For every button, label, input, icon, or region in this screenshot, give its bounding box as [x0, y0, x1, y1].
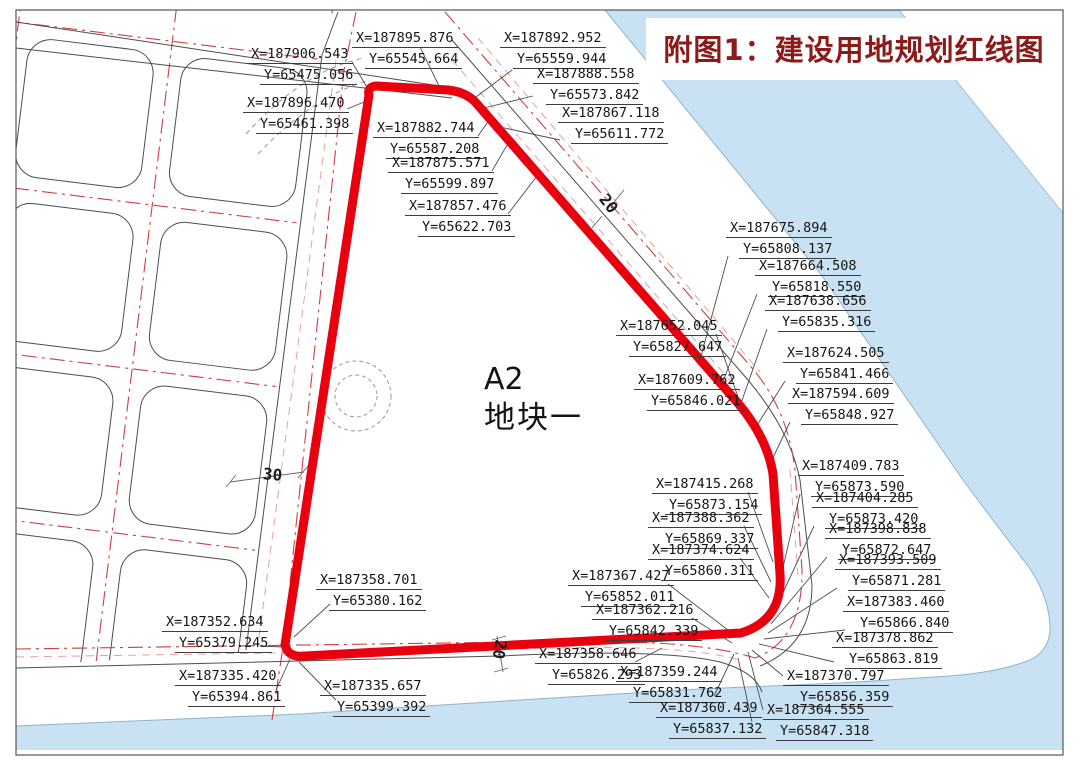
leader-line: [759, 644, 834, 662]
coord-x: X=187609.762: [634, 372, 740, 390]
coord-label: X=187867.118Y=65611.772: [558, 105, 668, 144]
coord-x: X=187364.555: [763, 702, 869, 720]
coord-x: X=187370.797: [783, 668, 889, 686]
coord-x: X=187359.244: [616, 664, 722, 682]
leader-line: [472, 70, 512, 100]
coord-label: X=187393.509Y=65871.281: [835, 552, 945, 591]
coord-y: Y=65837.132: [669, 721, 766, 739]
coord-y: Y=65871.281: [848, 573, 945, 591]
roundabout: [321, 361, 391, 431]
coord-label: X=187364.555Y=65847.318: [763, 702, 873, 741]
coord-y: Y=65379.245: [175, 635, 272, 653]
coord-x: X=187388.362: [648, 510, 754, 528]
coord-label: X=187362.216Y=65842.339: [592, 602, 702, 641]
coord-y: Y=65611.772: [571, 126, 668, 144]
figure-title: 附图1：建设用地规划红线图: [652, 24, 1056, 76]
leader-line: [752, 650, 783, 676]
coord-label: X=187358.701Y=65380.162: [316, 572, 426, 611]
coord-x: X=187378.862: [832, 630, 938, 648]
coord-x: X=187415.268: [652, 476, 758, 494]
coord-label: X=187857.476Y=65622.703: [405, 198, 515, 237]
coord-x: X=187367.427: [568, 568, 674, 586]
coord-label: X=187664.508Y=65818.550: [755, 258, 865, 297]
coord-label: X=187359.244Y=65831.762: [616, 664, 726, 703]
coord-label: X=187609.762Y=65846.021: [634, 372, 744, 411]
coord-x: X=187875.571: [388, 155, 494, 173]
coord-y: Y=65394.861: [188, 689, 285, 707]
coord-x: X=187594.609: [788, 386, 894, 404]
coord-x: X=187335.420: [175, 668, 281, 686]
coord-y: Y=65808.137: [739, 241, 836, 259]
coord-y: Y=65842.339: [605, 623, 702, 641]
coord-x: X=187352.634: [162, 614, 268, 632]
plot-label: A2 地块一: [484, 362, 583, 438]
coord-label: X=187875.571Y=65599.897: [388, 155, 498, 194]
coord-x: X=187624.505: [783, 345, 889, 363]
coord-label: X=187652.045Y=65827.647: [616, 318, 726, 357]
coord-x: X=187393.509: [835, 552, 941, 570]
coord-y: Y=65622.703: [418, 219, 515, 237]
coord-label: X=187378.862Y=65863.819: [832, 630, 942, 669]
coord-y: Y=65545.664: [365, 51, 462, 69]
coord-x: X=187398.838: [825, 521, 931, 539]
coord-label: X=187882.744Y=65587.208: [373, 120, 483, 159]
coord-label: X=187335.657Y=65399.392: [320, 678, 430, 717]
coord-x: X=187675.894: [726, 220, 832, 238]
coord-y: Y=65827.647: [629, 339, 726, 357]
road-width-label: 30: [262, 464, 283, 485]
coord-label: X=187895.876Y=65545.664: [352, 30, 462, 69]
coord-y: Y=65573.842: [546, 87, 643, 105]
coord-y: Y=65841.466: [796, 366, 893, 384]
road-width-label: 20: [489, 638, 511, 660]
coord-x: X=187888.558: [533, 66, 639, 84]
coord-y: Y=65475.056: [260, 67, 357, 85]
leader-line: [754, 381, 785, 430]
coord-label: X=187624.505Y=65841.466: [783, 345, 893, 384]
coord-x: X=187895.876: [352, 30, 458, 48]
coord-x: X=187892.952: [500, 30, 606, 48]
coord-x: X=187362.216: [592, 602, 698, 620]
coord-x: X=187652.045: [616, 318, 722, 336]
coord-x: X=187664.508: [755, 258, 861, 276]
coord-label: X=187675.894Y=65808.137: [726, 220, 836, 259]
coord-label: X=187594.609Y=65848.927: [788, 386, 898, 425]
coord-x: X=187404.285: [812, 490, 918, 508]
coord-y: Y=65846.021: [647, 393, 744, 411]
coord-y: Y=65835.316: [778, 314, 875, 332]
coord-label: X=187638.656Y=65835.316: [765, 293, 875, 332]
coord-x: X=187638.656: [765, 293, 871, 311]
coord-y: Y=65399.392: [333, 699, 430, 717]
coord-x: X=187358.646: [535, 646, 641, 664]
coord-x: X=187360.439: [656, 700, 762, 718]
coord-x: X=187374.624: [648, 542, 754, 560]
coord-x: X=187383.460: [843, 594, 949, 612]
coord-y: Y=65848.927: [801, 407, 898, 425]
coord-y: Y=65599.897: [401, 176, 498, 194]
coord-label: X=187352.634Y=65379.245: [162, 614, 272, 653]
coord-label: X=187335.420Y=65394.861: [175, 668, 285, 707]
coord-x: X=187906.543: [247, 46, 353, 64]
coord-x: X=187335.657: [320, 678, 426, 696]
coord-x: X=187867.118: [558, 105, 664, 123]
coord-y: Y=65461.398: [256, 116, 353, 134]
coord-y: Y=65863.819: [845, 651, 942, 669]
coord-label: X=187360.439Y=65837.132: [656, 700, 766, 739]
coord-x: X=187409.783: [798, 458, 904, 476]
plot-name: 地块一: [484, 398, 583, 438]
coord-label: X=187888.558Y=65573.842: [533, 66, 643, 105]
coord-label: X=187383.460Y=65866.840: [843, 594, 953, 633]
planning-map: 附图1：建设用地规划红线图 A2 地块一 X=187906.543Y=65475…: [0, 0, 1080, 764]
coord-x: X=187882.744: [373, 120, 479, 138]
coord-label: X=187906.543Y=65475.056: [247, 46, 357, 85]
coord-label: X=187892.952Y=65559.944: [500, 30, 610, 69]
coord-y: Y=65847.318: [776, 723, 873, 741]
coord-x: X=187857.476: [405, 198, 511, 216]
coord-x: X=187896.470: [243, 95, 349, 113]
plot-code: A2: [484, 362, 583, 398]
coord-label: X=187896.470Y=65461.398: [243, 95, 353, 134]
coord-y: Y=65380.162: [329, 593, 426, 611]
coord-x: X=187358.701: [316, 572, 422, 590]
